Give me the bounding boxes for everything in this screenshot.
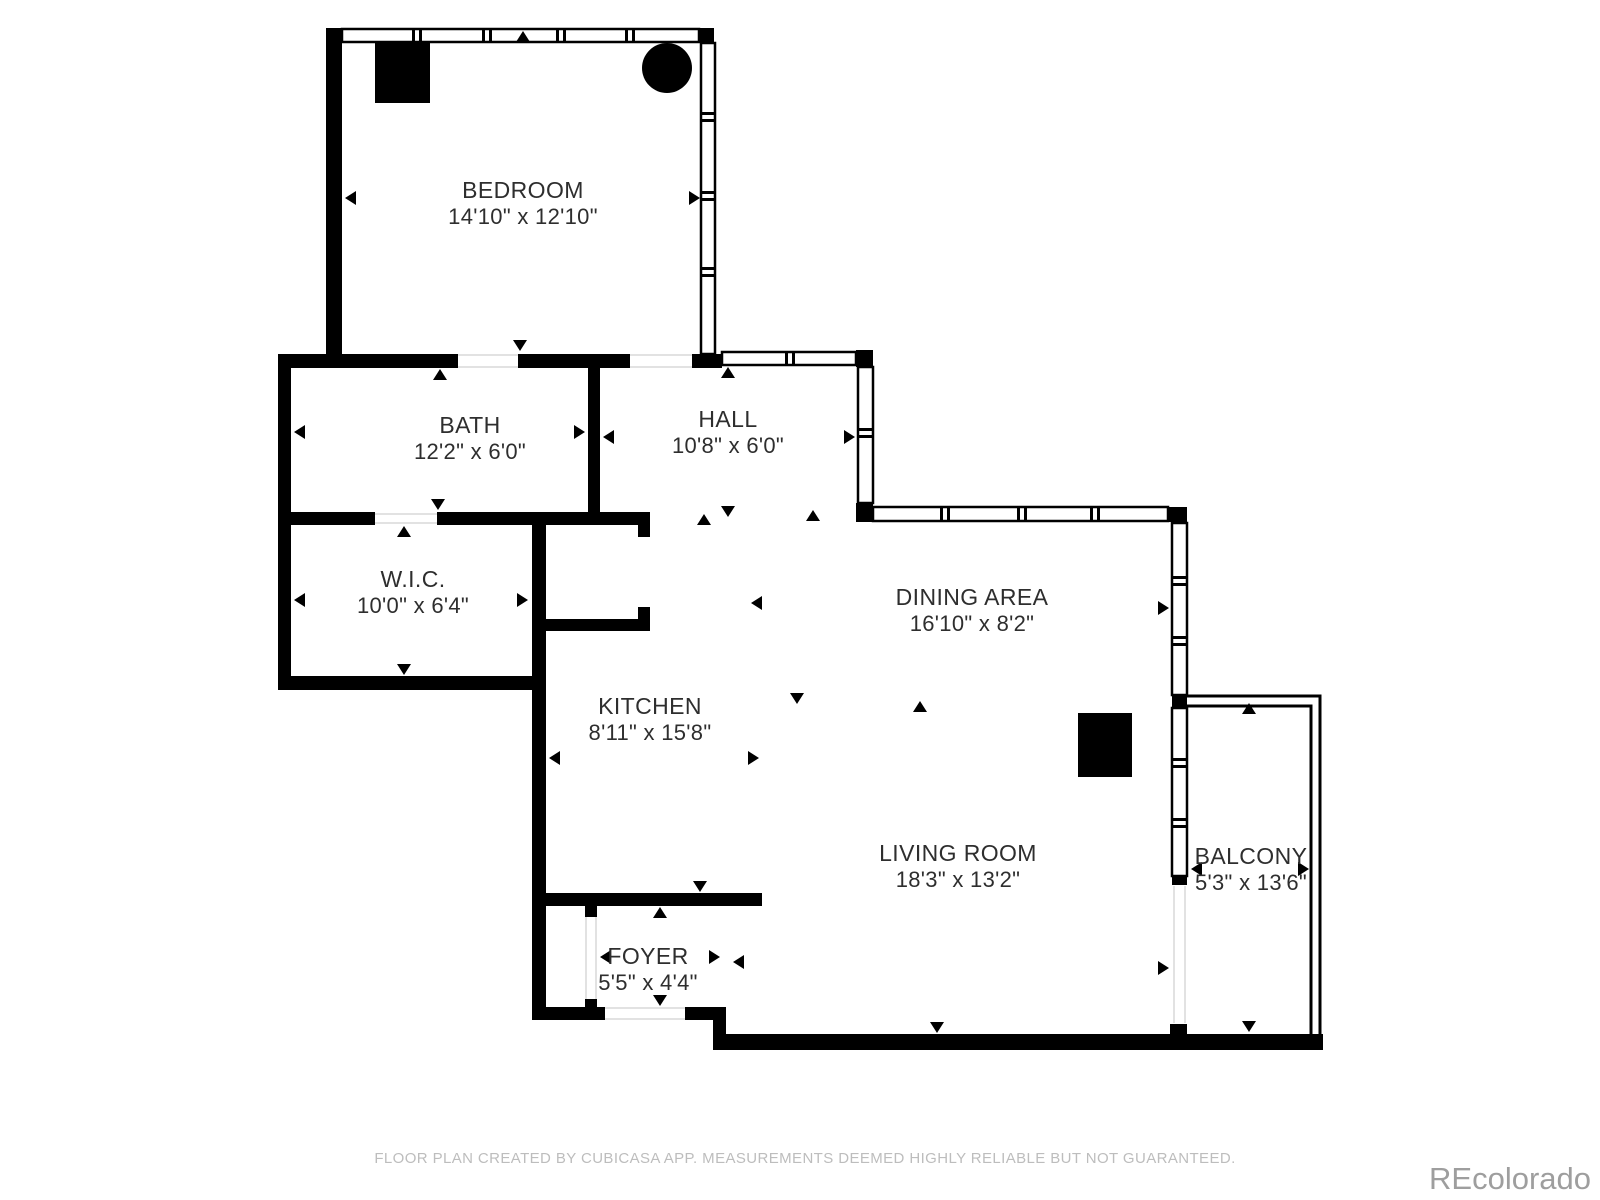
room-label-balcony-name: BALCONY	[1195, 843, 1308, 869]
room-label-balcony-dims: 5'3" x 13'6"	[1195, 870, 1307, 895]
round-column-fixture	[642, 43, 692, 93]
room-label-hall-dims: 10'8" x 6'0"	[672, 433, 784, 458]
footer-disclaimer: FLOOR PLAN CREATED BY CUBICASA APP. MEAS…	[374, 1150, 1235, 1167]
room-label-kitchen-name: KITCHEN	[598, 693, 702, 719]
dimension-arrows	[294, 31, 1309, 1033]
room-label-dining-dims: 16'10" x 8'2"	[910, 611, 1035, 636]
wall-segments	[278, 28, 1323, 1050]
room-label-kitchen-dims: 8'11" x 15'8"	[589, 720, 712, 745]
room-label-foyer-dims: 5'5" x 4'4"	[598, 970, 698, 995]
room-label-bedroom-name: BEDROOM	[462, 177, 584, 203]
room-label-wic-name: W.I.C.	[380, 566, 445, 592]
brand-watermark: REcolorado	[1429, 1161, 1591, 1196]
floor-plan-drawing: BEDROOM 14'10" x 12'10" BATH 12'2" x 6'0…	[0, 0, 1600, 1200]
room-label-dining-name: DINING AREA	[896, 584, 1049, 610]
room-label-bath-name: BATH	[439, 412, 500, 438]
room-label-hall-name: HALL	[698, 406, 757, 432]
room-label-wic-dims: 10'0" x 6'4"	[357, 593, 469, 618]
room-label-foyer-name: FOYER	[607, 943, 688, 969]
room-label-living-name: LIVING ROOM	[879, 840, 1037, 866]
room-label-bath-dims: 12'2" x 6'0"	[414, 439, 526, 464]
room-label-living-dims: 18'3" x 13'2"	[896, 867, 1021, 892]
window-mullions	[412, 29, 1187, 828]
floor-plan-page: BEDROOM 14'10" x 12'10" BATH 12'2" x 6'0…	[0, 0, 1600, 1200]
room-label-bedroom-dims: 14'10" x 12'10"	[448, 204, 598, 229]
